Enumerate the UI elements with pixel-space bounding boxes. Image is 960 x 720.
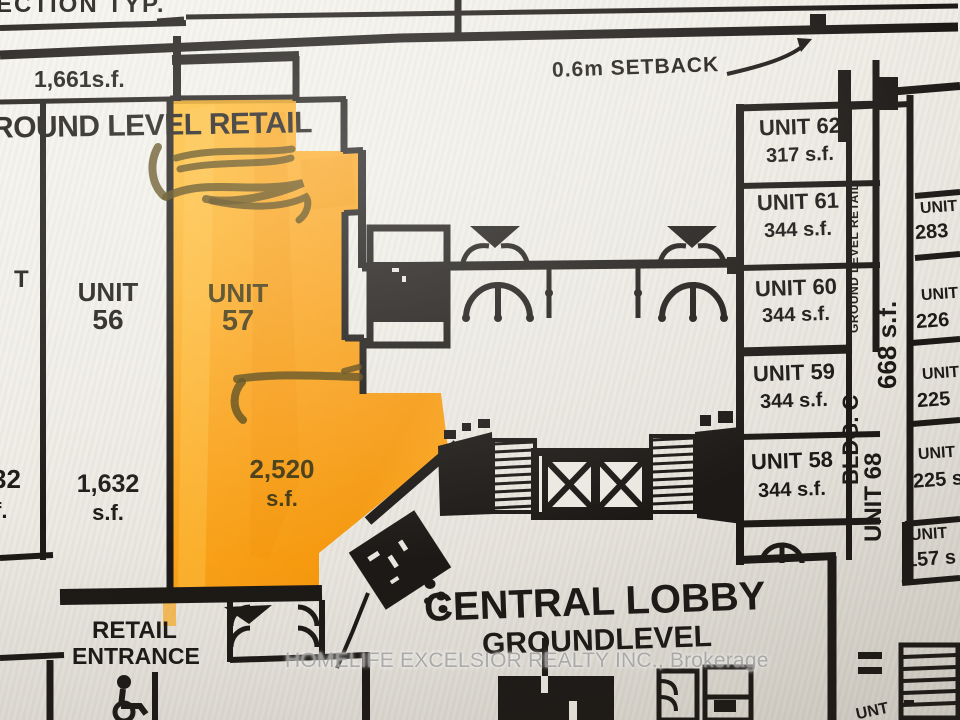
unit-283-area: 283: [914, 221, 949, 244]
hatched-area: [901, 645, 958, 718]
unit-225b-name: UNIT: [917, 445, 955, 464]
unit-225b-area: 225 s: [912, 468, 960, 492]
unit-59-area: 344 s.f.: [740, 389, 849, 413]
vertical-unit-68-label: UNIT 68: [860, 422, 888, 572]
brokerage-watermark: HOMELIFE EXCELSIOR REALTY INC., Brokerag…: [285, 649, 769, 673]
unit-59-name: UNIT 59: [740, 360, 849, 386]
unit-56-area: 1,632: [66, 472, 150, 498]
floor-plan-photo: ECTION TYP. 1,661s.f. ROUND LEVEL RETAIL…: [0, 0, 960, 720]
unit-57-number: 57: [202, 307, 274, 337]
elevator-shaft: [368, 228, 447, 345]
unit-225a-area: 225: [916, 389, 951, 412]
unit-61-name: UNIT 61: [744, 189, 853, 215]
left-partial-sf: f.: [0, 500, 7, 522]
entrance-flag-icons: [463, 226, 724, 262]
retail-entrance-label-line1: RETAIL: [92, 619, 177, 643]
unit-58-area: 344 s.f.: [738, 478, 847, 502]
unit-56-label: UNIT: [72, 279, 144, 306]
unit-226-area: 226: [915, 310, 950, 333]
unit-62-name: UNIT 62: [746, 114, 855, 140]
vertical-ground-level-retail-label: GROUND LEVEL RETAIL: [847, 183, 861, 333]
unit-283-name: UNIT: [919, 199, 957, 218]
unit-60-name: UNIT 60: [742, 275, 851, 301]
unit-157-area: 157 s: [905, 547, 956, 571]
setback-arrow-icon: [727, 38, 812, 74]
ground-level-retail-label: ROUND LEVEL RETAIL: [0, 108, 312, 144]
unit-58-name: UNIT 58: [738, 448, 847, 474]
unit-62-area: 317 s.f.: [746, 143, 855, 167]
wheelchair-icon: [115, 675, 146, 720]
section-typ-label: ECTION TYP.: [0, 0, 166, 17]
unit-57-area: 2,520: [240, 456, 324, 483]
unit-225a-name: UNIT: [921, 365, 959, 384]
door-swing-icons: [462, 268, 728, 322]
unit-57-area-unit: s.f.: [240, 488, 324, 510]
unit-60-area: 344 s.f.: [742, 303, 851, 327]
retail-entrance-label-line2: ENTRANCE: [72, 645, 200, 668]
left-partial-unit: T: [14, 268, 29, 292]
unit-157-name: UNIT: [909, 526, 947, 545]
vertical-668-label: 668 s.f.: [872, 256, 903, 434]
unit-57-label: UNIT: [202, 280, 274, 307]
left-partial-area: 32: [0, 466, 21, 493]
unit-56-area-unit: s.f.: [66, 502, 150, 524]
area-1661-label: 1,661s.f.: [34, 68, 125, 91]
stairs-block: [438, 411, 742, 524]
unit-226-name: UNIT: [920, 286, 958, 305]
unit-56-number: 56: [72, 306, 144, 335]
unit-61-area: 344 s.f.: [744, 218, 853, 242]
